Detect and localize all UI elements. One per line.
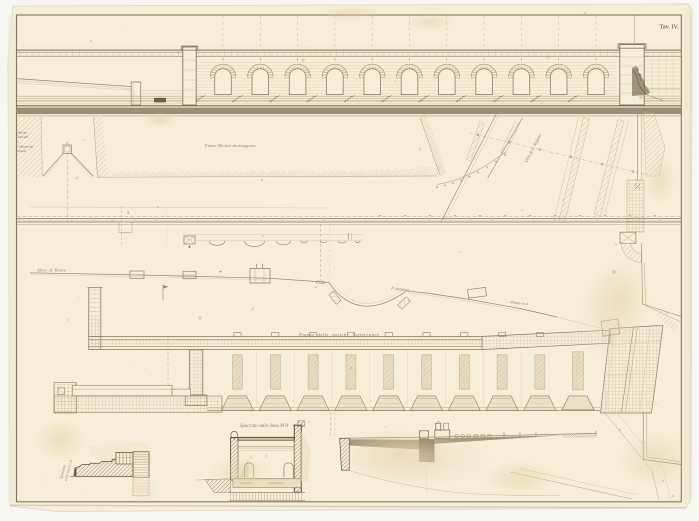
- svg-text:Cala: Cala: [316, 281, 326, 286]
- svg-text:Fiume Diolati da maggiore: Fiume Diolati da maggiore: [204, 143, 256, 148]
- svg-text:dopoli: dopoli: [18, 149, 27, 153]
- svg-text:Alveo di Ronco: Alveo di Ronco: [36, 268, 67, 273]
- svg-text:colmamenti: colmamenti: [18, 144, 34, 148]
- svg-text:Spaccato sulla linea M N: Spaccato sulla linea M N: [240, 424, 289, 429]
- svg-text:distrutti: distrutti: [18, 135, 29, 139]
- svg-text:Rovine: Rovine: [17, 131, 28, 135]
- svg-text:3: 3: [127, 211, 129, 215]
- svg-text:3: 3: [261, 178, 263, 182]
- svg-text:2: 2: [252, 307, 254, 311]
- svg-text:Tav. IV.: Tav. IV.: [660, 24, 680, 31]
